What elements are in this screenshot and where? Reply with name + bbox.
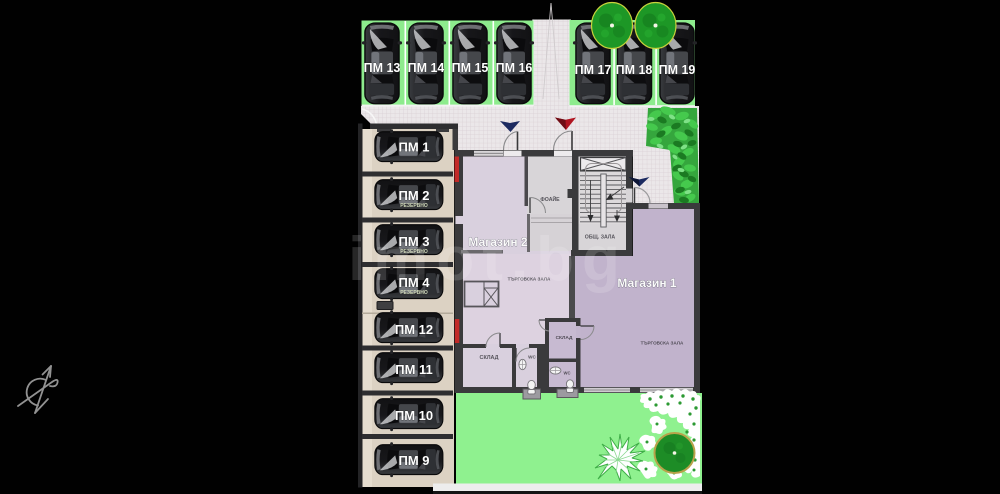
svg-text:ПМ 13: ПМ 13 — [364, 61, 401, 75]
svg-text:ПМ 11: ПМ 11 — [395, 362, 433, 377]
svg-text:ПМ 1: ПМ 1 — [398, 140, 429, 155]
svg-text:ПМ 16: ПМ 16 — [496, 61, 533, 75]
svg-text:ПМ 9: ПМ 9 — [398, 453, 429, 468]
svg-text:ФОАЙЕ: ФОАЙЕ — [540, 195, 560, 203]
svg-text:ПМ 10: ПМ 10 — [395, 408, 433, 423]
svg-text:ПМ 15: ПМ 15 — [452, 61, 489, 75]
svg-text:ПМ 18: ПМ 18 — [616, 63, 653, 77]
svg-text:WC: WC — [564, 371, 571, 376]
svg-text:ПМ 14: ПМ 14 — [408, 61, 445, 75]
svg-text:РЕЗЕРВНО: РЕЗЕРВНО — [400, 203, 428, 209]
svg-text:ТЪРГОВСКА ЗАЛА: ТЪРГОВСКА ЗАЛА — [641, 341, 684, 346]
svg-text:ПМ 17: ПМ 17 — [575, 63, 612, 77]
svg-text:ПМ 2: ПМ 2 — [398, 188, 429, 203]
svg-text:ПМ 12: ПМ 12 — [395, 322, 433, 337]
svg-text:WC: WC — [528, 355, 536, 360]
svg-text:СКЛАД: СКЛАД — [556, 335, 573, 341]
svg-text:СКЛАД: СКЛАД — [480, 355, 499, 361]
svg-text:ПМ 19: ПМ 19 — [659, 63, 696, 77]
svg-text:imot.bg: imot.bg — [348, 225, 628, 294]
